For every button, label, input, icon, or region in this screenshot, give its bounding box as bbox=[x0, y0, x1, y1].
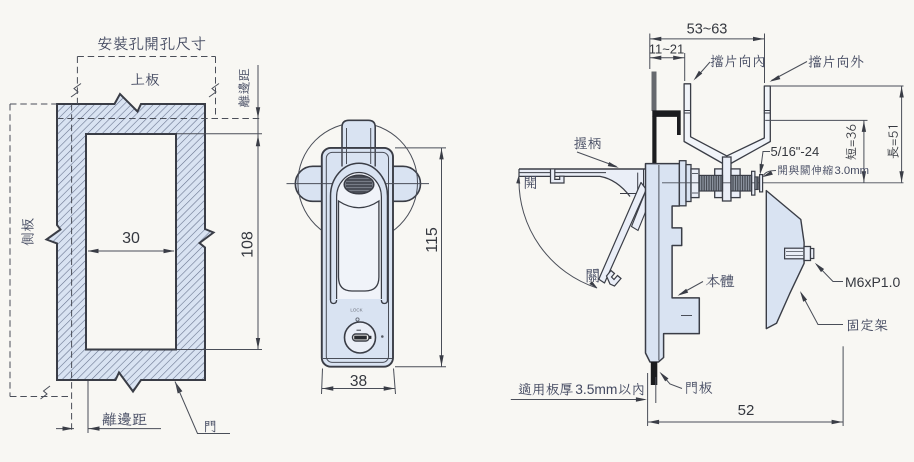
svg-text:52: 52 bbox=[738, 402, 755, 419]
svg-text:108: 108 bbox=[240, 231, 257, 258]
svg-text:M6xP1.0: M6xP1.0 bbox=[845, 274, 900, 290]
svg-text:5/16"-24: 5/16"-24 bbox=[771, 144, 820, 159]
svg-text:38: 38 bbox=[350, 373, 367, 390]
svg-text:115: 115 bbox=[424, 227, 441, 253]
svg-text:53~63: 53~63 bbox=[687, 22, 728, 38]
svg-text:30: 30 bbox=[122, 230, 140, 247]
svg-text:LOCK: LOCK bbox=[350, 308, 362, 313]
svg-text:3.5mm: 3.5mm bbox=[575, 382, 617, 397]
svg-text:11~21: 11~21 bbox=[649, 42, 685, 57]
svg-text:3.0mm: 3.0mm bbox=[835, 165, 870, 177]
